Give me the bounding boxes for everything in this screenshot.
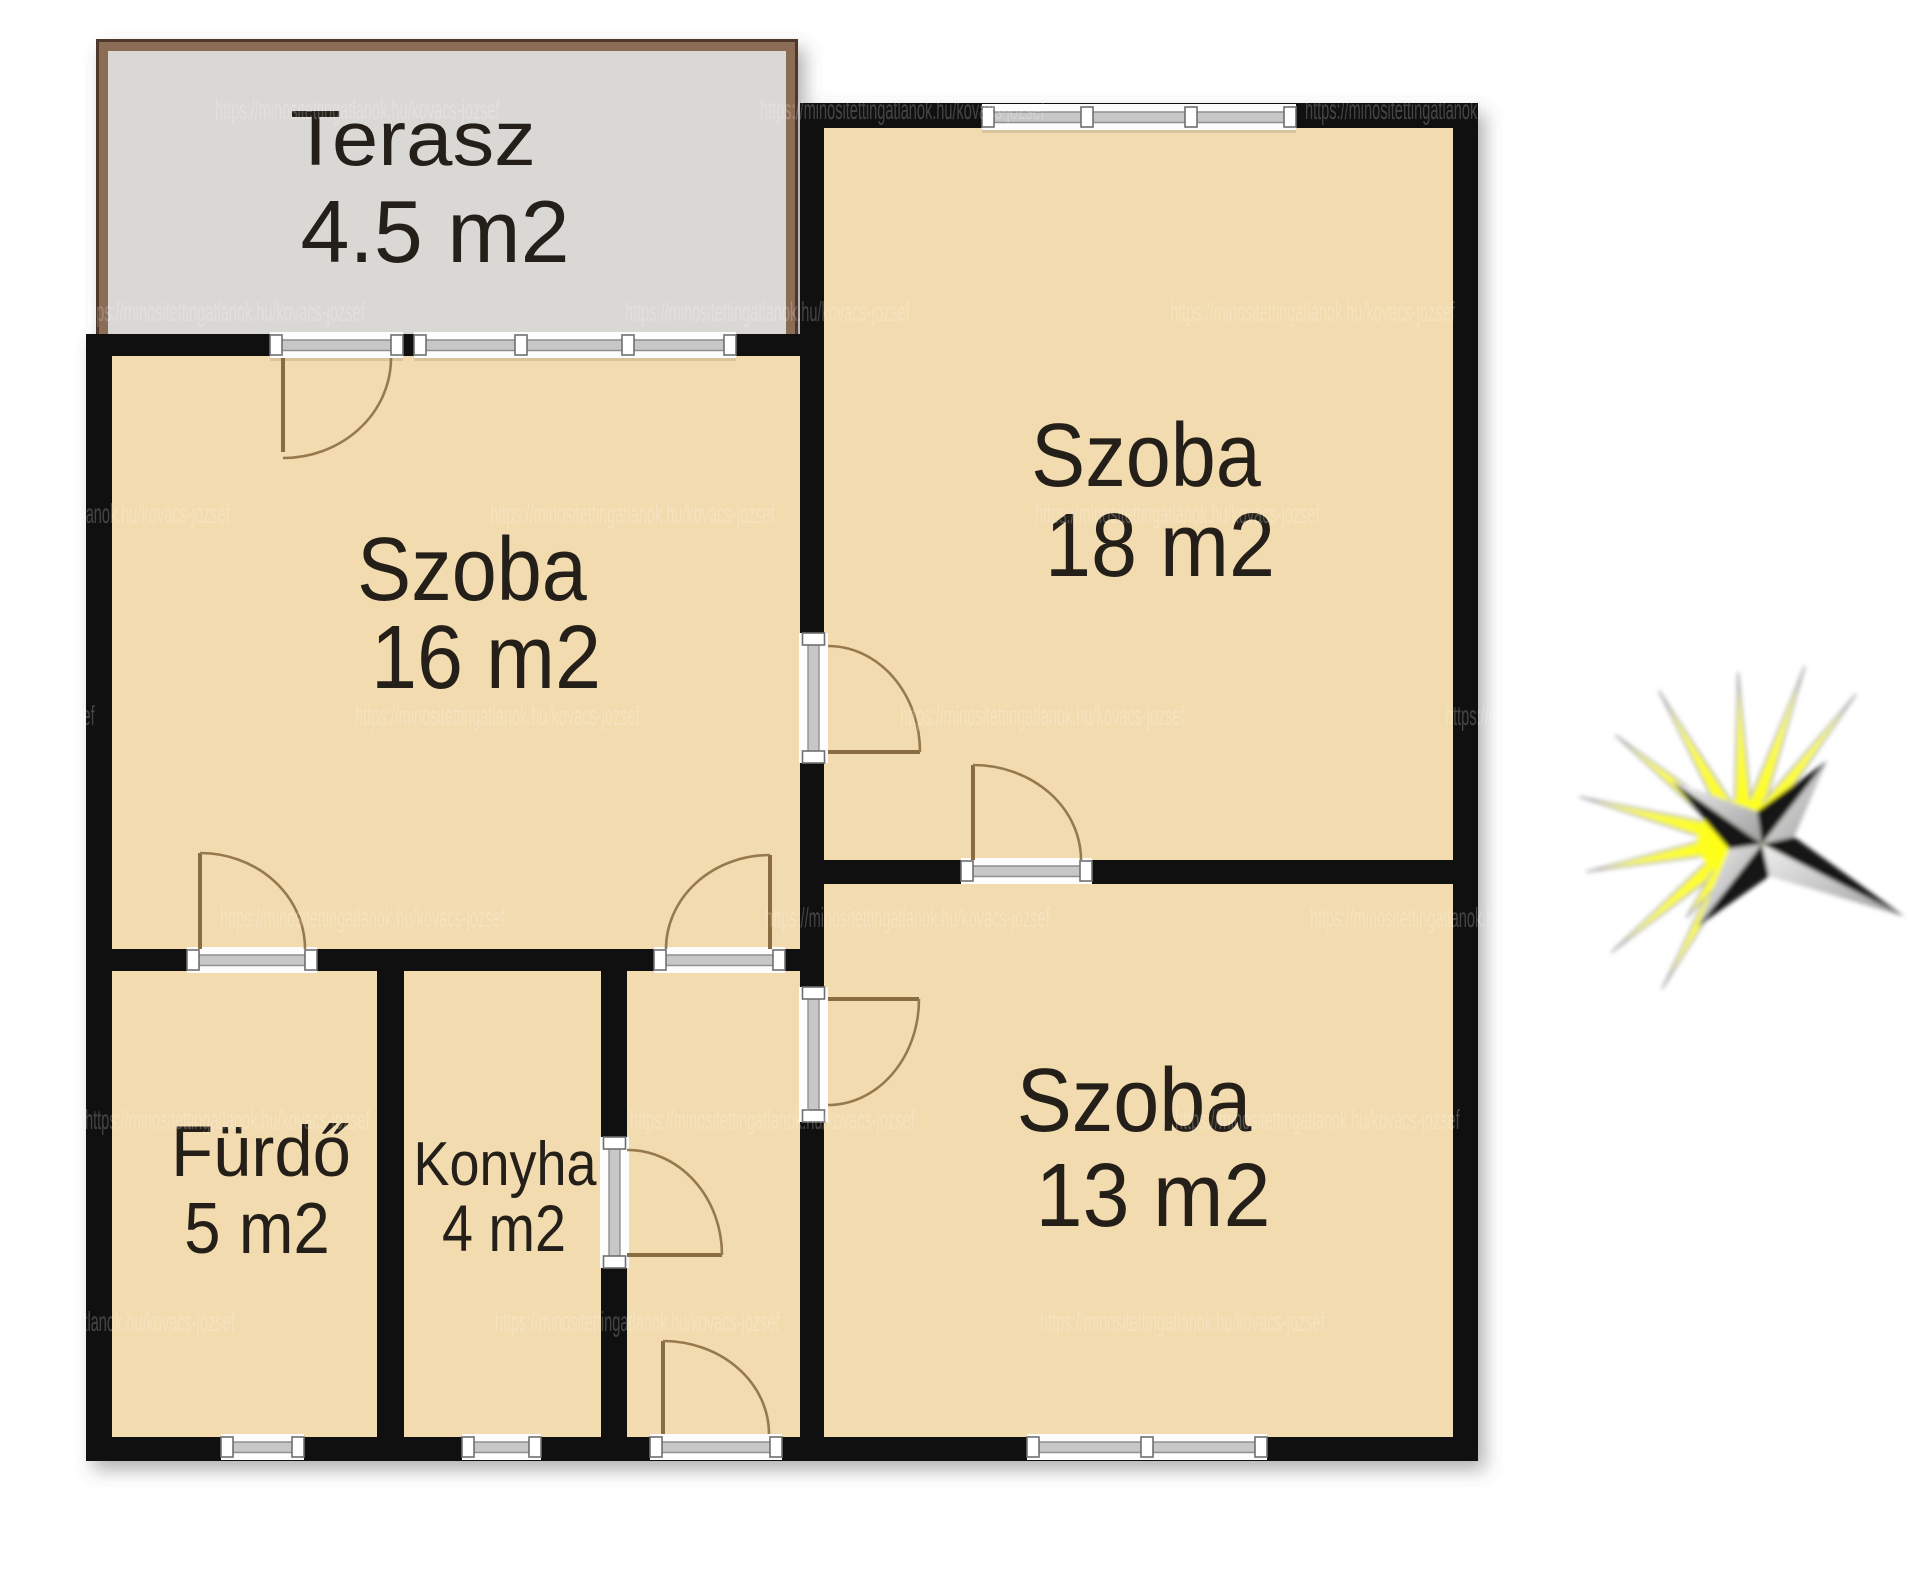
svg-text:https://minositettingatlanok.h: https://minositettingatlanok.hu/kovacs-j… [760, 94, 1045, 125]
svg-text:https://minositettingatlanok.h: https://minositettingatlanok.hu/kovacs-j… [355, 700, 640, 731]
svg-text:Szoba: Szoba [1017, 1051, 1253, 1151]
svg-text:5 m2: 5 m2 [184, 1188, 330, 1269]
svg-text:https://minositettingatlanok.h: https://minositettingatlanok.hu/kovacs-j… [1580, 498, 1865, 529]
svg-text:Konyha: Konyha [414, 1130, 598, 1199]
svg-text:4 m2: 4 m2 [442, 1192, 566, 1265]
svg-text:https://minositettingatlanok.h: https://minositettingatlanok.hu/kovacs-j… [1450, 1508, 1735, 1539]
svg-text:https://minositettingatlanok.h: https://minositettingatlanok.hu/kovacs-j… [765, 902, 1050, 933]
svg-text:13 m2: 13 m2 [1035, 1145, 1270, 1246]
svg-text:https://minositettingatlanok.h: https://minositettingatlanok.hu/kovacs-j… [905, 1508, 1190, 1539]
svg-text:https://minositettingatlanok.h: https://minositettingatlanok.hu/kovacs-j… [1445, 700, 1730, 731]
svg-text:https://minositettingatlanok.h: https://minositettingatlanok.hu/kovacs-j… [0, 498, 230, 529]
svg-text:https://minositettingatlanok.h: https://minositettingatlanok.hu/kovacs-j… [1720, 1104, 1920, 1135]
svg-text:https://minositettingatlanok.h: https://minositettingatlanok.hu/kovacs-j… [1305, 94, 1590, 125]
svg-text:https://minositettingatlanok.h: https://minositettingatlanok.hu/kovacs-j… [1175, 1104, 1460, 1135]
svg-text:https://minositettingatlanok.h: https://minositettingatlanok.hu/kovacs-j… [1170, 296, 1455, 327]
svg-text:4.5 m2: 4.5 m2 [300, 182, 569, 281]
svg-text:https://minositettingatlanok.h: https://minositettingatlanok.hu/kovacs-j… [80, 296, 365, 327]
svg-text:https://minositettingatlanok.h: https://minositettingatlanok.hu/kovacs-j… [1040, 1306, 1325, 1337]
svg-text:https://minositettingatlanok.h: https://minositettingatlanok.hu/kovacs-j… [220, 902, 505, 933]
svg-text:https://minositettingatlanok.h: https://minositettingatlanok.hu/kovacs-j… [495, 1306, 780, 1337]
svg-text:https://minositettingatlanok.h: https://minositettingatlanok.hu/kovacs-j… [1585, 1306, 1870, 1337]
svg-text:https://minositettingatlanok.h: https://minositettingatlanok.hu/kovacs-j… [630, 1104, 915, 1135]
svg-text:https://minositettingatlanok.h: https://minositettingatlanok.hu/kovacs-j… [85, 1104, 370, 1135]
svg-text:https://minositettingatlanok.h: https://minositettingatlanok.hu/kovacs-j… [1715, 296, 1920, 327]
svg-text:Szoba: Szoba [357, 519, 587, 620]
svg-text:https://minositettingatlanok.h: https://minositettingatlanok.hu/kovacs-j… [625, 296, 910, 327]
svg-text:https://minositettingatlanok.h: https://minositettingatlanok.hu/kovacs-j… [900, 700, 1185, 731]
svg-text:https://minositettingatlanok.h: https://minositettingatlanok.hu/kovacs-j… [0, 1508, 100, 1539]
svg-text:https://minositettingatlanok.h: https://minositettingatlanok.hu/kovacs-j… [0, 1306, 235, 1337]
svg-text:Szoba: Szoba [1031, 405, 1261, 506]
svg-text:https://minositettingatlanok.h: https://minositettingatlanok.hu/kovacs-j… [360, 1508, 645, 1539]
svg-text:16 m2: 16 m2 [371, 608, 601, 708]
svg-text:https://minositettingatlanok.h: https://minositettingatlanok.hu/kovacs-j… [215, 94, 500, 125]
svg-text:https://minositettingatlanok.h: https://minositettingatlanok.hu/kovacs-j… [1850, 94, 1920, 125]
svg-text:https://minositettingatlanok.h: https://minositettingatlanok.hu/kovacs-j… [490, 498, 775, 529]
svg-text:https://minositettingatlanok.h: https://minositettingatlanok.hu/kovacs-j… [0, 700, 95, 731]
svg-text:https://minositettingatlanok.h: https://minositettingatlanok.hu/kovacs-j… [1310, 902, 1595, 933]
svg-text:https://minositettingatlanok.h: https://minositettingatlanok.hu/kovacs-j… [1035, 498, 1320, 529]
